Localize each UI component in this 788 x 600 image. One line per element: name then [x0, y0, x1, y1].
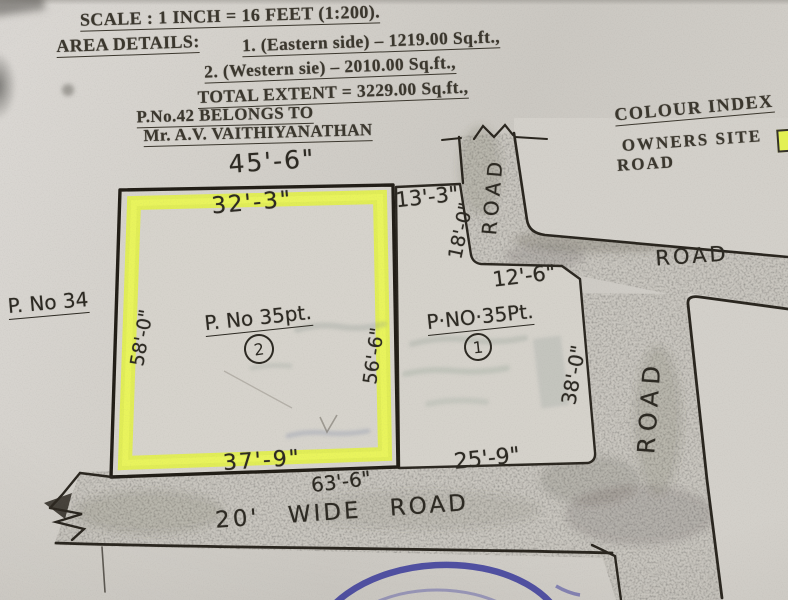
dim-west-plot-bottom: 37'-9" — [222, 447, 302, 475]
road-label-right-vertical: ROAD — [634, 359, 666, 455]
road-label-right-horizontal: ROAD — [655, 242, 730, 269]
scanned-site-plan: SCALE : 1 INCH = 16 FEET (1:200). AREA D… — [0, 0, 788, 600]
owners-site-swatch — [776, 128, 788, 152]
dim-outer-top: 45'-6" — [228, 146, 317, 178]
owner-line-2: Mr. A.V. VAITHIYANATHAN — [143, 121, 373, 145]
colour-index-road: ROAD — [616, 153, 675, 174]
area-details-label: AREA DETAILS: — [56, 32, 200, 56]
label-plot34: P. No 34 — [7, 289, 89, 317]
